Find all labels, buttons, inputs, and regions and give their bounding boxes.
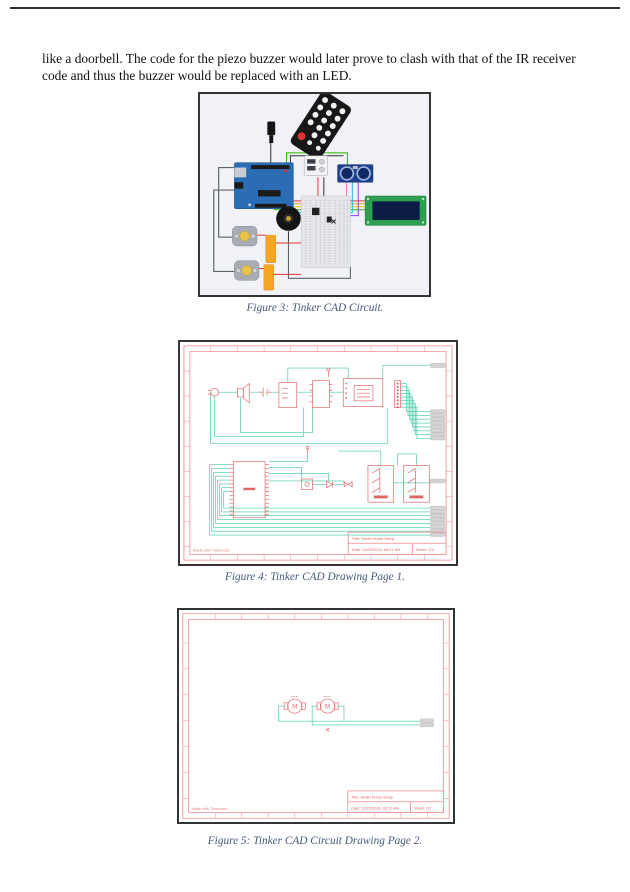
tinkercad-circuit-graphic [200,94,429,295]
title-block-title: Title: Smart Home Setup [351,795,393,799]
schematic-inner-border [190,352,446,555]
title-block-date: Date: 10/22/2024, 06:11 AM [352,547,401,552]
motor2-label: M [325,704,330,711]
schematic-outer-border [184,346,452,560]
component-labels-red [243,488,423,499]
motor-symbols [284,697,338,732]
document-page: like a doorbell. The code for the piezo … [0,0,630,892]
ir-receiver [312,208,319,215]
title-block-sheet: Sheet: 1/2 [416,547,434,552]
ultrasonic-sensor [338,165,373,183]
breadboard [301,196,350,268]
component-symbols-bottom [229,446,429,517]
title-block-title: Title: Smart Home Setup [352,536,395,541]
title-block-date: Date: 10/22/2024, 06:11 AM [351,806,399,810]
connector-stubs [430,363,445,536]
title-block: Title: Smart Home Setup Date: 10/22/2024… [348,791,444,813]
ir-remote [289,94,353,161]
figure3-tinkercad-circuit [198,92,431,297]
figure3-caption: Figure 3: Tinker CAD Circuit. [0,302,630,314]
power-plug [267,121,275,143]
lcd-display [365,196,426,225]
dc-motor-1 [232,226,257,246]
arduino-uno [234,163,293,209]
border-ticks [184,346,452,560]
motor1-label: M [292,704,297,711]
piezo-buzzer [276,206,301,231]
figure4-caption: Figure 4: Tinker CAD Drawing Page 1. [0,571,630,583]
schematic-page1-graphic: Title: Smart Home Setup Date: 10/22/2024… [180,342,456,564]
schematic-outer-border [183,614,449,818]
figure4-schematic-page1: Title: Smart Home Setup Date: 10/22/2024… [178,340,458,566]
tinkercad-watermark: Made with Tinkercad [192,807,227,811]
body-paragraph: like a doorbell. The code for the piezo … [42,51,594,84]
schematic-page2-graphic: M M Title: Smart Home Setup Date: 10/22/… [179,610,453,822]
title-block-sheet: Sheet: 2/2 [414,806,432,810]
schematic-wires [278,706,420,725]
figure5-schematic-page2: M M Title: Smart Home Setup Date: 10/22/… [177,608,455,824]
h-bridge-2 [264,265,274,290]
power-supply [304,156,328,176]
page-top-rule [10,7,620,9]
border-ticks [183,614,449,818]
h-bridge-1 [266,235,276,262]
dc-motor-2 [234,261,259,281]
connector-stubs [420,719,434,727]
component-symbols-top [208,368,401,408]
tinkercad-watermark: Made with Tinkercad [193,548,229,553]
transistor [327,217,332,223]
header-pins [345,382,398,408]
figure5-caption: Figure 5: Tinker CAD Circuit Drawing Pag… [0,835,630,847]
schematic-inner-border [189,619,444,812]
